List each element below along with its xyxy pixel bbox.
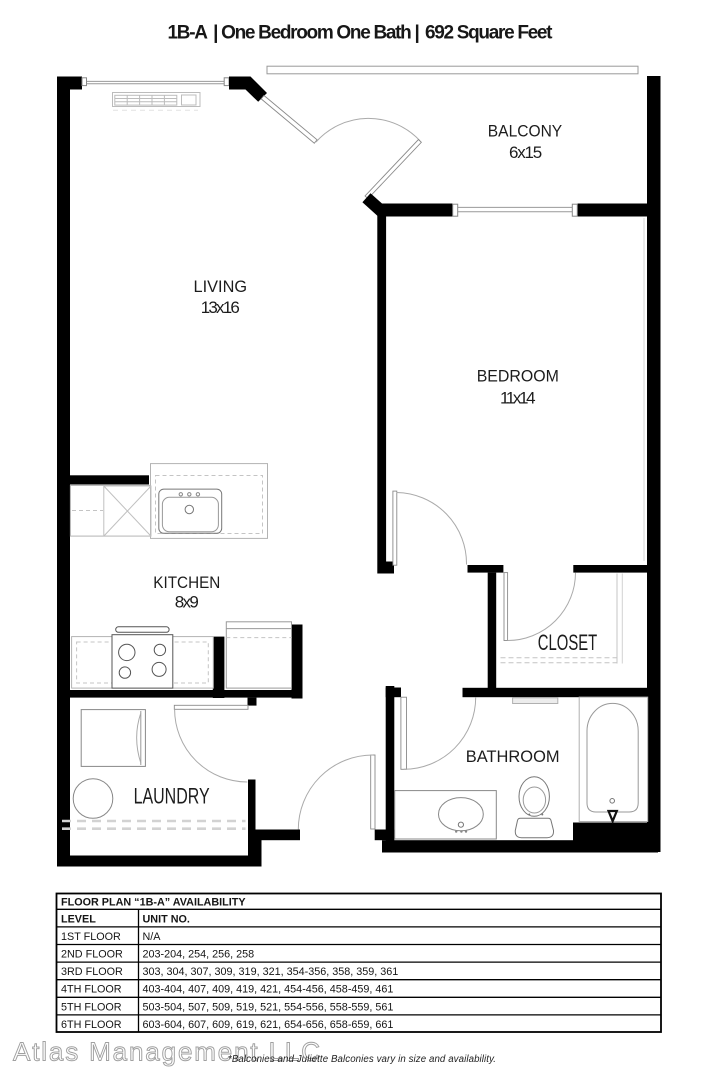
svg-text:*Balconies and Juliette Balcon: *Balconies and Juliette Balconies vary i…: [228, 1054, 496, 1065]
svg-text:1ST FLOOR: 1ST FLOOR: [61, 931, 121, 943]
svg-text:KITCHEN: KITCHEN: [153, 573, 220, 592]
svg-text:FLOOR PLAN “1B-A” AVAILABILITY: FLOOR PLAN “1B-A” AVAILABILITY: [61, 896, 246, 908]
svg-text:603-604, 607, 609, 619, 621, 6: 603-604, 607, 609, 619, 621, 654-656, 65…: [143, 1019, 394, 1031]
svg-text:2ND FLOOR: 2ND FLOOR: [61, 949, 123, 961]
svg-text:13x16: 13x16: [201, 298, 240, 317]
svg-text:8x9: 8x9: [175, 592, 199, 611]
svg-text:6TH FLOOR: 6TH FLOOR: [61, 1019, 122, 1031]
svg-text:503-504, 507, 509, 519, 521, 5: 503-504, 507, 509, 519, 521, 554-556, 55…: [143, 1001, 394, 1013]
svg-text:11x14: 11x14: [500, 388, 536, 407]
svg-text:5TH FLOOR: 5TH FLOOR: [61, 1001, 122, 1013]
svg-text:303, 304, 307, 309, 319, 321,: 303, 304, 307, 309, 319, 321, 354-356, 3…: [143, 966, 399, 978]
svg-text:UNIT NO.: UNIT NO.: [143, 913, 190, 925]
svg-text:6x15: 6x15: [509, 143, 542, 162]
svg-text:LAUNDRY: LAUNDRY: [134, 784, 210, 809]
svg-text:4TH FLOOR: 4TH FLOOR: [61, 984, 122, 996]
svg-text:LEVEL: LEVEL: [61, 913, 96, 925]
svg-text:BALCONY: BALCONY: [488, 122, 562, 141]
svg-text:BATHROOM: BATHROOM: [466, 747, 560, 766]
svg-text:LIVING: LIVING: [194, 277, 248, 296]
svg-text:3RD FLOOR: 3RD FLOOR: [61, 966, 123, 978]
svg-text:CLOSET: CLOSET: [538, 631, 597, 656]
svg-text:N/A: N/A: [143, 931, 162, 943]
svg-text:403-404, 407, 409, 419, 421, 4: 403-404, 407, 409, 419, 421, 454-456, 45…: [143, 984, 394, 996]
svg-text:1B-A | One Bedroom One Bath |: 1B-A | One Bedroom One Bath | 692 Square…: [168, 23, 554, 44]
svg-text:BEDROOM: BEDROOM: [477, 367, 559, 386]
svg-text:203-204, 254, 256, 258: 203-204, 254, 256, 258: [143, 949, 255, 961]
